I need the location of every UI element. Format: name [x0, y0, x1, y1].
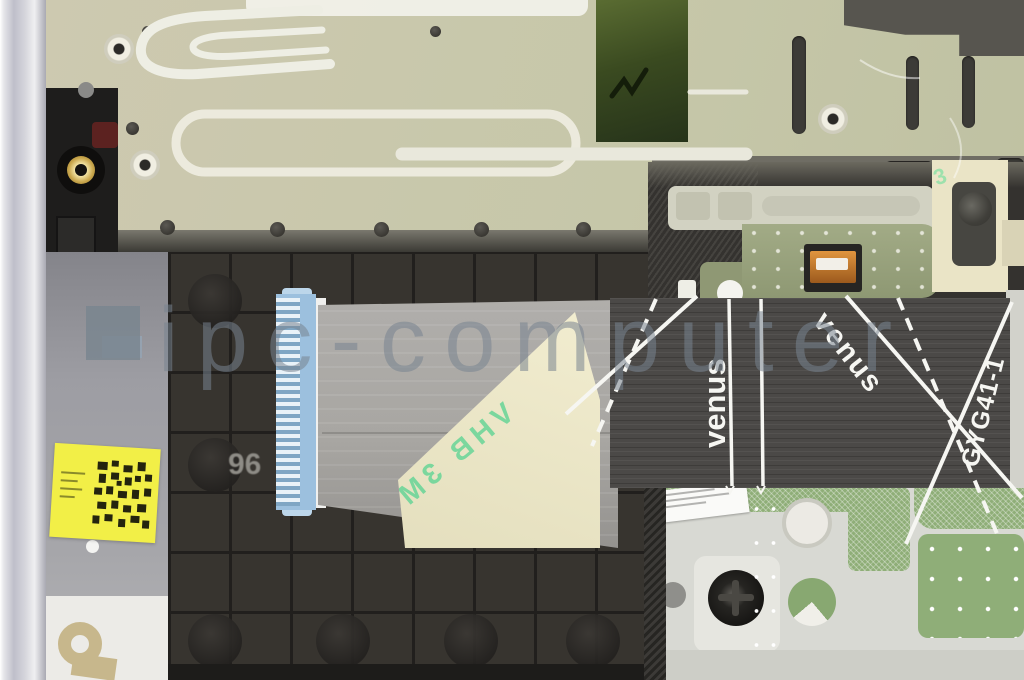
key-dome [566, 614, 620, 668]
touchpad-circle-cut [788, 578, 836, 626]
red-patch [92, 122, 118, 148]
rivet [142, 26, 153, 37]
embossed-detail [676, 192, 710, 220]
vent-slot [962, 56, 975, 128]
connector-glint [816, 258, 848, 270]
rivet [430, 26, 441, 37]
touchpad-puck [782, 498, 832, 548]
embossed-detail [718, 192, 752, 220]
rivet [576, 222, 591, 237]
screw-boss [104, 34, 134, 64]
grommet-hole [75, 164, 87, 176]
qr-sticker [49, 443, 161, 543]
watermark-text: ipc-computer [158, 288, 911, 393]
screw-boss [130, 150, 160, 180]
embossed-detail [762, 196, 920, 216]
tape-screw [958, 192, 992, 226]
rivet [374, 222, 389, 237]
rivet-dot-column [748, 492, 782, 674]
pcb-pad [848, 487, 910, 571]
photo-laptop-palmrest-assembly: 96 9077 AK 3 [0, 0, 1024, 680]
touchpad-bottom-strip [662, 650, 1024, 680]
tape-corner-mark: 3 [930, 163, 950, 192]
qr-code [92, 459, 154, 530]
sticker-text-lines [55, 465, 91, 505]
key-dome [444, 614, 498, 668]
screw-cross [732, 580, 739, 616]
bracket-dot [78, 82, 94, 98]
rivet [160, 220, 175, 235]
rivet [126, 122, 139, 135]
grid-bottom-band [168, 664, 660, 680]
tape-piece-right: 3 [932, 160, 1008, 292]
tape-tab [1002, 220, 1024, 266]
pcb-pad-dotted [918, 534, 1024, 638]
screw-boss [818, 104, 848, 134]
panel-dot [86, 540, 99, 553]
backplate-bottom-shadow [46, 230, 660, 254]
vent-slot [906, 56, 919, 130]
key-dome [316, 614, 370, 668]
key-dome [188, 614, 242, 668]
green-label [596, 0, 688, 142]
watermark-logo [86, 306, 140, 360]
grid-edge-mark: 96 [228, 448, 261, 482]
palmrest-edge-strip [0, 0, 46, 680]
vent-slot [792, 36, 806, 134]
rivet [270, 222, 285, 237]
backplate-top-ridge [246, 0, 588, 16]
pcb-pad [914, 487, 1024, 529]
rivet [474, 222, 489, 237]
touchpad-left-hatch [644, 486, 666, 680]
